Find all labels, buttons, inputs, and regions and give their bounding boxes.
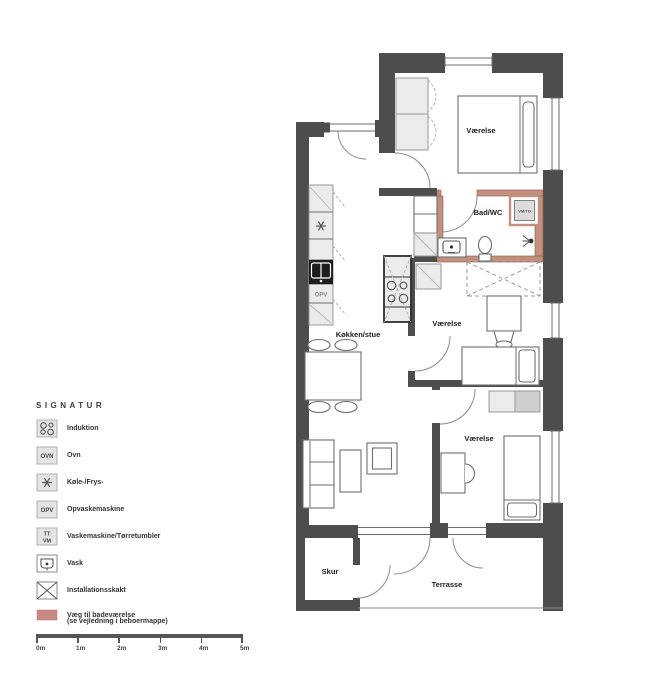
- svg-text:OVN: OVN: [40, 454, 53, 460]
- scale-bar-line: [36, 634, 242, 638]
- shower-icon: [523, 236, 534, 247]
- door-shed: [357, 565, 390, 598]
- desk: [487, 296, 521, 348]
- installation-shaft-icon: [36, 581, 58, 600]
- washer-dryer-box: VM/TD: [510, 196, 539, 225]
- single-bed: [462, 347, 539, 385]
- window-top: [445, 56, 492, 67]
- oven-icon: OVN: [36, 446, 58, 465]
- fridge-freezer-icon: [36, 473, 58, 492]
- legend-item-washer-dryer: TT VM Vaskemaskine/Tørretumbler: [36, 527, 160, 546]
- scale-bar: 0m 1m 2m 3m 4m 5m: [36, 634, 248, 656]
- legend-item-installation-shaft: Installationsskakt: [36, 581, 126, 600]
- scale-label: 1m: [76, 645, 85, 652]
- svg-text:TT: TT: [44, 532, 51, 538]
- bath-sink: [438, 238, 466, 257]
- window-bedroom-bottom-east: [550, 431, 561, 503]
- single-bed: [504, 436, 540, 520]
- kitchen-counter: OPV: [309, 185, 346, 325]
- room-shed: Skur: [322, 567, 339, 576]
- room-kitchen-living: Køkken/stue: [336, 330, 381, 339]
- svg-text:VM: VM: [43, 539, 52, 545]
- desk: [441, 453, 475, 493]
- armchair: [367, 443, 397, 474]
- legend-item-sink: Vask: [36, 554, 83, 573]
- induction-icon: [36, 419, 58, 438]
- entry-door: [323, 123, 375, 160]
- scale-label: 3m: [158, 645, 167, 652]
- kitchen-sink-icon: [309, 260, 333, 284]
- door-bedroom-top: [395, 153, 430, 188]
- terrace-glazing: [358, 528, 486, 535]
- legend-item-oven: OVN Ovn: [36, 446, 81, 465]
- wardrobe: [515, 391, 540, 412]
- legend-item-induction: Induktion: [36, 419, 99, 438]
- coffee-table: [340, 450, 361, 492]
- scale-label: 0m: [36, 645, 45, 652]
- scale-label: 5m: [240, 645, 249, 652]
- room-terrace: Terrasse: [432, 580, 463, 589]
- bathroom-wall-swatch: [36, 606, 58, 625]
- washer-dryer-icon: TT VM: [36, 527, 58, 546]
- wardrobe: [489, 391, 515, 412]
- door-bedroom-middle: [415, 336, 450, 371]
- kitchen-tall-cabinet: [414, 196, 437, 256]
- installation-shaft: [467, 262, 540, 296]
- room-bathroom: Bad/WC: [474, 208, 503, 217]
- door-bedroom-terrace: [453, 538, 483, 568]
- dining-table: [305, 340, 361, 413]
- legend-item-bathroom-wall-note: (se vejledning i beboermappe): [67, 618, 168, 625]
- dishwasher-icon: OPV: [36, 500, 58, 519]
- legend-item-dishwasher: OPV Opvaskemaskine: [36, 500, 124, 519]
- legend-title: SIGNATUR: [36, 401, 105, 410]
- door-bedroom-bottom: [440, 389, 475, 424]
- living-room-furniture: [303, 340, 397, 509]
- floor-plan-page: VM/TD: [0, 0, 666, 700]
- window-bedroom-top-east: [550, 98, 561, 170]
- scale-label: 4m: [199, 645, 208, 652]
- door-bathroom: [441, 196, 477, 232]
- sink-icon: [36, 554, 58, 573]
- dishwasher-label: OPV: [315, 293, 328, 299]
- wardrobe: [396, 78, 428, 114]
- kitchen-island: [384, 256, 411, 322]
- washer-dryer-label: VM/TD: [518, 209, 531, 214]
- room-bedroom-middle: Værelse: [432, 319, 461, 328]
- bedroom-bottom-furniture: [441, 391, 540, 520]
- room-bedroom-top: Værelse: [466, 126, 495, 135]
- room-bedroom-bottom: Værelse: [464, 434, 493, 443]
- wardrobe: [396, 114, 428, 150]
- door-living-terrace: [394, 538, 430, 574]
- legend-item-fridge: Køle-/Frys-: [36, 473, 104, 492]
- window-bedroom-middle-east: [550, 303, 561, 338]
- svg-text:OPV: OPV: [41, 508, 54, 514]
- sofa: [303, 440, 334, 508]
- scale-label: 2m: [117, 645, 126, 652]
- toilet-icon: [479, 237, 492, 262]
